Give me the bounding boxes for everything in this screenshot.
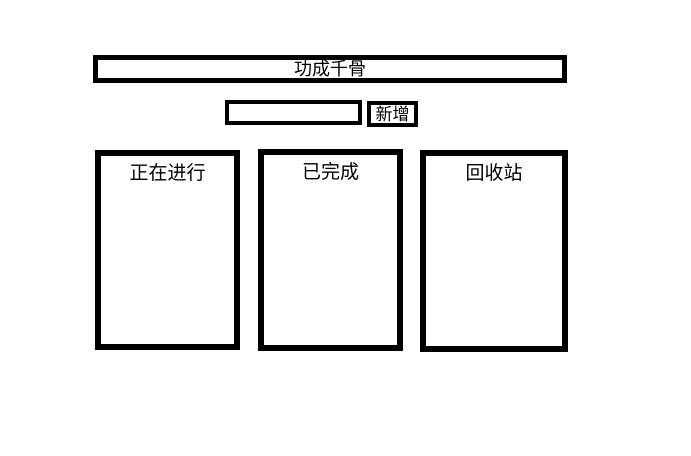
- panel-in-progress: 正在进行: [95, 150, 240, 350]
- panel-completed: 已完成: [258, 149, 403, 351]
- add-task-button[interactable]: 新增: [367, 101, 418, 127]
- new-task-input[interactable]: [225, 100, 362, 125]
- task-board-page: 功成千骨 新增 正在进行 已完成 回收站: [0, 0, 691, 456]
- panel-recycle-bin-label: 回收站: [426, 164, 562, 184]
- panel-recycle-bin: 回收站: [420, 150, 568, 352]
- app-title-bar: 功成千骨: [93, 55, 567, 83]
- panel-in-progress-label: 正在进行: [101, 164, 234, 184]
- panel-completed-label: 已完成: [264, 163, 397, 183]
- app-title: 功成千骨: [294, 60, 366, 78]
